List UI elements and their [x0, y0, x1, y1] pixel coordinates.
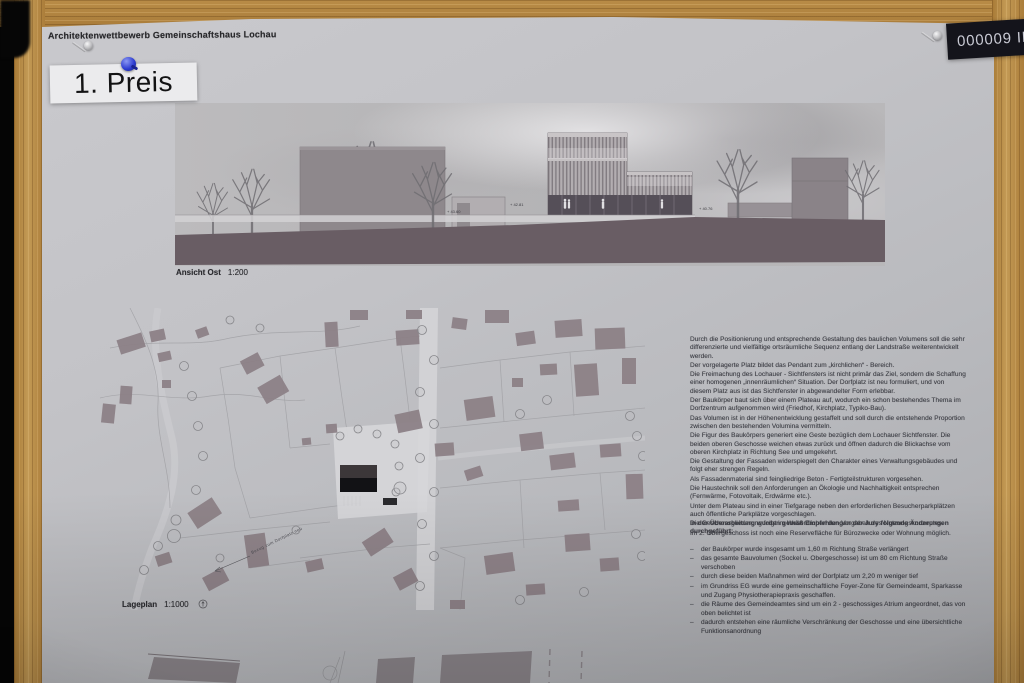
text-line: Der Baukörper baut sich über einem Plate…: [690, 397, 966, 414]
text-line: Der vorgelagerte Platz bildet das Pendan…: [690, 362, 966, 370]
elevation-caption: Ansicht Ost1:200: [176, 268, 248, 277]
text-line: Die Gestaltung der Fassaden widerspiegel…: [690, 458, 966, 475]
elevation-caption-text: Ansicht Ost: [176, 268, 221, 277]
text-line: dadurch entstehen eine räumliche Verschr…: [690, 619, 974, 636]
text-line: im Grundriss EG wurde eine gemeinschaftl…: [690, 583, 974, 600]
blue-push-pin-icon: [121, 57, 136, 71]
text-line: Durch die Positionierung und entsprechen…: [690, 336, 966, 361]
building-community-house: [548, 133, 692, 215]
bottom-partial-drawing: [140, 641, 660, 683]
revision-heading: In der Überarbeitung wurden gemäß Empfeh…: [690, 520, 974, 537]
text-line: durch diese beiden Maßnahmen wird der Do…: [690, 573, 974, 581]
prize-label-text: 1. Preis: [74, 66, 174, 100]
level-mark: + 42.81: [510, 202, 524, 207]
building-right-block: [792, 158, 848, 222]
siteplan-scale: 1:1000: [164, 600, 188, 609]
level-mark: + 40.76: [699, 206, 713, 211]
siteplan-svg: Bezug zum Dorfplatz neu: [100, 308, 645, 610]
wood-frame-left: [14, 0, 45, 683]
siteplan-caption: Lageplan1:1000: [122, 599, 208, 609]
level-mark: + 43.60: [447, 209, 461, 214]
text-line: Die Haustechnik soll den Anforderungen a…: [690, 485, 966, 502]
siteplan-caption-text: Lageplan: [122, 600, 157, 609]
text-line: Als Fassadenmaterial sind feingliedrige …: [690, 476, 966, 484]
revision-bullet-list: der Baukörper wurde insgesamt um 1,60 m …: [690, 546, 974, 636]
text-line: der Baukörper wurde insgesamt um 1,60 m …: [690, 546, 974, 554]
entry-number-text: 000009 II: [957, 28, 1024, 49]
elevation-svg: + 43.60 + 42.81 + 40.76: [175, 103, 885, 266]
text-line: Die Figur des Baukörpers generiert eine …: [690, 432, 966, 457]
background-shadow-corner: [0, 0, 30, 58]
text-line: Das Volumen ist in der Höhenentwicklung …: [690, 415, 966, 432]
siteplan-drawing: Bezug zum Dorfplatz neu: [100, 308, 645, 610]
elevation-drawing: + 43.60 + 42.81 + 40.76: [175, 103, 885, 266]
north-arrow-icon: [198, 599, 208, 609]
push-pin-icon: [933, 31, 942, 40]
text-line: das gesamte Bauvolumen (Sockel u. Oberge…: [690, 555, 974, 572]
push-pin-icon: [84, 41, 93, 50]
photo-scene: Architektenwettbewerb Gemeinschaftshaus …: [0, 0, 1024, 683]
wood-frame-right: [992, 0, 1024, 683]
entry-number-label: 000009 II: [946, 18, 1024, 59]
text-line: Die Freimachung des Lochauer - Sichtfens…: [690, 371, 966, 396]
text-line: die Räume des Gemeindeamtes sind um ein …: [690, 601, 974, 618]
text-line: Unter dem Plateau sind in einer Tiefgara…: [690, 503, 966, 520]
elevation-scale: 1:200: [228, 268, 248, 277]
ground-band: [175, 217, 885, 265]
revision-notes: In der Überarbeitung wurden gemäß Empfeh…: [690, 520, 974, 638]
poster-header: Architektenwettbewerb Gemeinschaftshaus …: [48, 29, 277, 41]
jury-description: Durch die Positionierung und entsprechen…: [690, 336, 966, 539]
